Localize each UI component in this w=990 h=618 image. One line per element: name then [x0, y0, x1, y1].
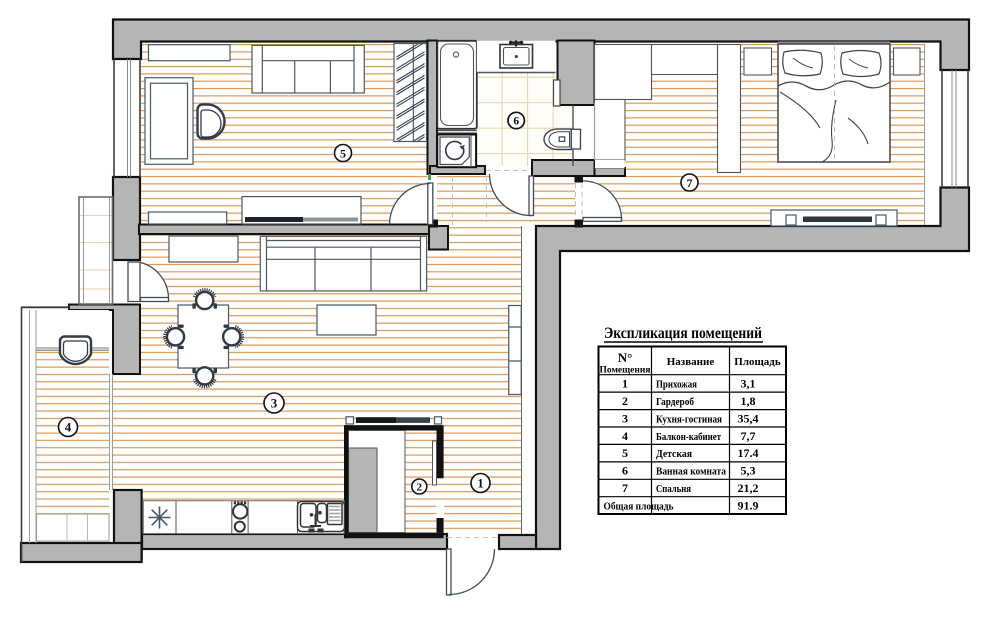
- svg-text:35,4: 35,4: [738, 411, 759, 425]
- svg-text:1,8: 1,8: [741, 394, 756, 408]
- svg-text:6: 6: [622, 464, 628, 478]
- svg-text:3: 3: [271, 396, 278, 411]
- svg-text:Помещения: Помещения: [600, 366, 651, 376]
- svg-text:1: 1: [477, 476, 484, 491]
- svg-text:1: 1: [622, 377, 628, 391]
- svg-text:Спальня: Спальня: [656, 484, 691, 495]
- svg-text:21,2: 21,2: [738, 481, 759, 495]
- svg-text:91.9: 91.9: [738, 499, 759, 513]
- svg-text:3: 3: [622, 411, 628, 425]
- svg-text:Прихожая: Прихожая: [656, 380, 697, 391]
- svg-text:2: 2: [417, 481, 423, 493]
- svg-text:Балкон-кабинет: Балкон-кабинет: [656, 432, 722, 443]
- svg-text:N°: N°: [618, 350, 633, 365]
- svg-text:5: 5: [622, 446, 628, 460]
- svg-text:5,3: 5,3: [741, 464, 756, 478]
- svg-text:Площадь: Площадь: [734, 356, 781, 368]
- svg-text:2: 2: [622, 394, 628, 408]
- svg-text:Общая площадь: Общая площадь: [604, 502, 674, 513]
- svg-text:Название: Название: [667, 356, 715, 368]
- svg-text:6: 6: [513, 116, 519, 128]
- svg-text:7,7: 7,7: [741, 429, 756, 443]
- svg-text:3,1: 3,1: [741, 377, 756, 391]
- svg-text:4: 4: [65, 420, 72, 435]
- svg-text:Гардероб: Гардероб: [656, 397, 694, 408]
- svg-text:4: 4: [622, 429, 628, 443]
- svg-text:7: 7: [687, 176, 693, 190]
- svg-text:Ванная комната: Ванная комната: [656, 467, 727, 478]
- svg-text:Экспликация помещений: Экспликация помещений: [604, 325, 762, 342]
- svg-text:17.4: 17.4: [738, 446, 759, 460]
- svg-text:Кухня-гостиная: Кухня-гостиная: [656, 414, 722, 425]
- svg-text:5: 5: [340, 146, 346, 160]
- svg-text:7: 7: [622, 481, 628, 495]
- svg-text:Детская: Детская: [656, 449, 692, 460]
